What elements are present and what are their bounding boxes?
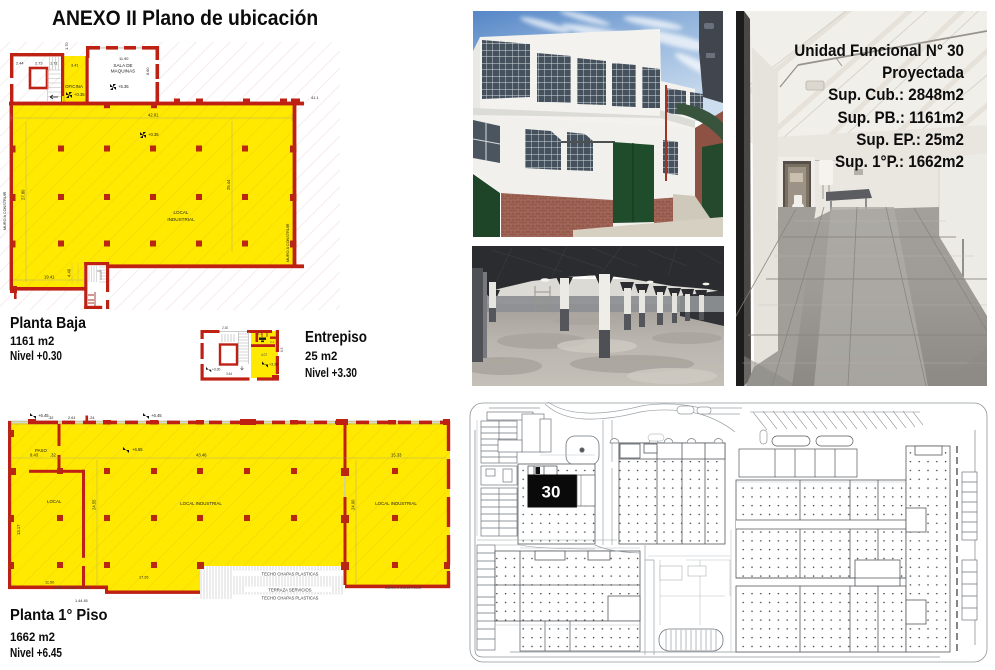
svg-text:43.46: 43.46 <box>196 453 207 458</box>
svg-text:42.01: 42.01 <box>148 113 159 118</box>
svg-text:MURO A CONSTRUIR: MURO A CONSTRUIR <box>3 191 7 230</box>
svg-text:1.44.45: 1.44.45 <box>75 599 88 603</box>
svg-text:11.90: 11.90 <box>119 56 129 61</box>
svg-text:6.3: 6.3 <box>280 347 284 352</box>
svg-text:OFICINA: OFICINA <box>65 84 83 89</box>
svg-text:SALA DE: SALA DE <box>113 63 132 68</box>
svg-text:+6.45: +6.45 <box>38 413 49 418</box>
svg-text:27.80: 27.80 <box>21 189 26 200</box>
svg-text:41.1: 41.1 <box>311 95 319 100</box>
svg-text:+6.45: +6.45 <box>151 413 162 418</box>
svg-text:2.44: 2.44 <box>16 61 24 66</box>
svg-text:.32: .32 <box>48 415 53 420</box>
svg-text:4.40: 4.40 <box>67 268 72 277</box>
svg-text:+3.30: +3.30 <box>269 363 278 367</box>
svg-text:LOCAL: LOCAL <box>47 499 62 504</box>
svg-text:3.41: 3.41 <box>71 63 79 68</box>
svg-text:4.07: 4.07 <box>261 353 267 357</box>
svg-text:1.71: 1.71 <box>50 61 58 66</box>
svg-text:LOCAL: LOCAL <box>173 210 189 215</box>
svg-text:3.64: 3.64 <box>226 372 232 376</box>
svg-text:2.73: 2.73 <box>35 61 43 66</box>
svg-text:MURO A CONSTRUIR: MURO A CONSTRUIR <box>385 586 422 590</box>
svg-text:+5.35: +5.35 <box>118 84 129 89</box>
svg-text:9.43: 9.43 <box>30 453 39 458</box>
svg-text:TERRAZA SERVICIOS: TERRAZA SERVICIOS <box>268 588 311 593</box>
svg-text:17.26: 17.26 <box>139 576 149 580</box>
svg-text:+3.30: +3.30 <box>212 368 221 372</box>
svg-text:+0.35: +0.35 <box>74 92 85 97</box>
svg-text:MURO A CONSTRUIR: MURO A CONSTRUIR <box>53 586 90 590</box>
svg-text:2.30: 2.30 <box>222 326 228 330</box>
svg-text:24.55: 24.55 <box>92 499 97 510</box>
svg-text:.24: .24 <box>89 415 95 420</box>
svg-text:+6.55: +6.55 <box>132 447 143 452</box>
svg-text:13.17: 13.17 <box>16 524 21 535</box>
svg-text:1.3: 1.3 <box>258 332 263 336</box>
svg-text:1.70: 1.70 <box>64 42 69 50</box>
svg-text:2.1: 2.1 <box>270 340 275 344</box>
svg-text:8.60: 8.60 <box>145 67 150 75</box>
svg-text:2.61: 2.61 <box>68 415 76 420</box>
svg-text:.32: .32 <box>50 453 56 458</box>
svg-text:TECHO CHAPAS PLASTICAS: TECHO CHAPAS PLASTICAS <box>262 572 319 577</box>
svg-text:LOCAL INDUSTRIAL: LOCAL INDUSTRIAL <box>180 501 222 506</box>
svg-text:TECHO CHAPAS PLASTICAS: TECHO CHAPAS PLASTICAS <box>262 596 319 601</box>
svg-text:30: 30 <box>542 483 561 502</box>
svg-text:LOCAL INDUSTRIAL: LOCAL INDUSTRIAL <box>375 501 417 506</box>
svg-text:+0.35: +0.35 <box>148 132 159 137</box>
svg-text:15.33: 15.33 <box>391 453 402 458</box>
svg-text:INDUSTRIAL: INDUSTRIAL <box>167 217 195 222</box>
svg-text:MAQUINAS: MAQUINAS <box>111 69 136 74</box>
svg-text:25.44: 25.44 <box>226 179 231 190</box>
svg-text:24.00: 24.00 <box>351 499 356 510</box>
svg-text:19.41: 19.41 <box>44 275 55 280</box>
svg-text:11.50: 11.50 <box>45 581 54 585</box>
svg-text:MURO A CONSTRUIR: MURO A CONSTRUIR <box>286 223 290 262</box>
